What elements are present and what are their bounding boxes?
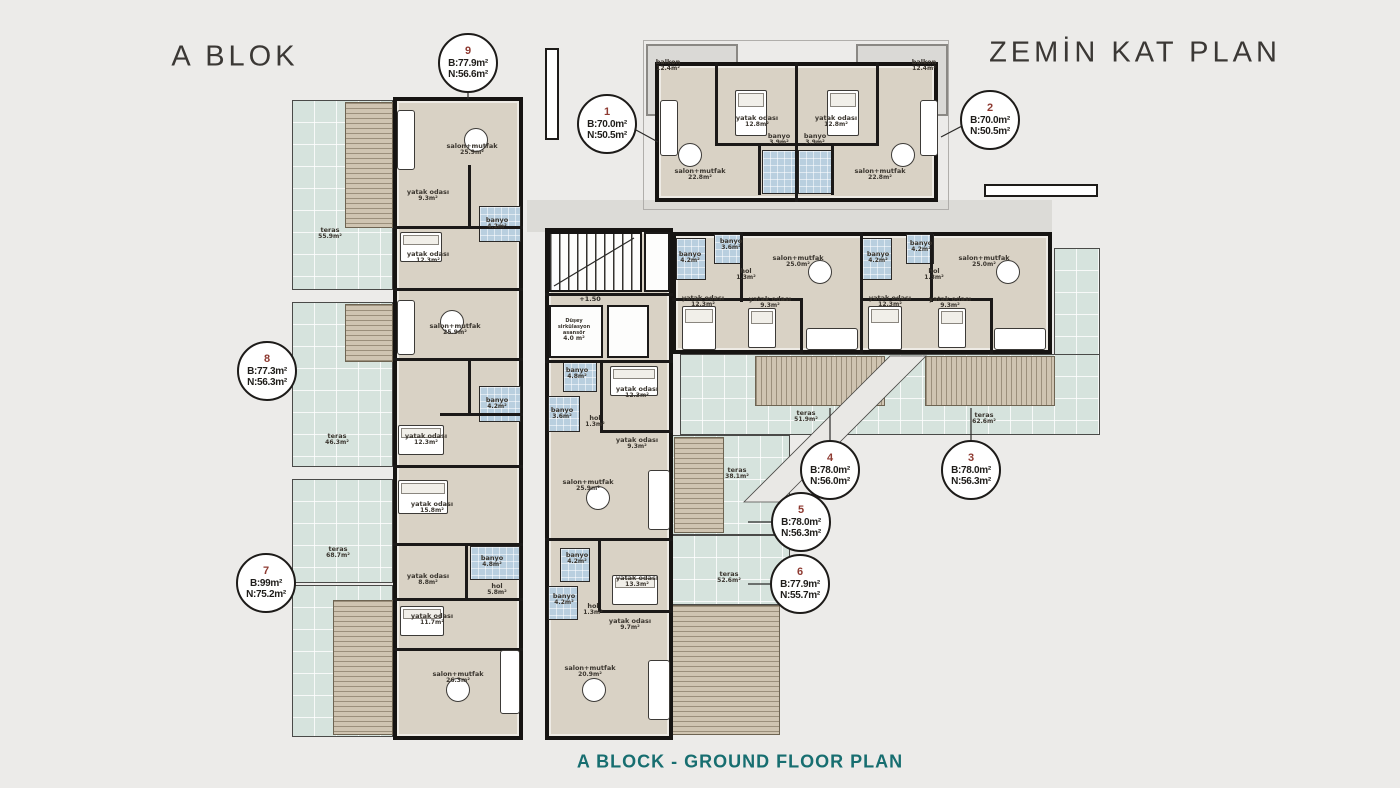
unit-badge-3: 3B:78.0m²N:56.3m² [941,440,1001,500]
unit-net-area: N:56.3m² [951,476,991,487]
room-area: 3.9m² [804,140,826,147]
room-label: banyo4.8m² [481,555,503,569]
room-label: hol1.3m² [585,415,605,429]
unit-net-area: N:56.3m² [781,528,821,539]
room-area: 9.3m² [616,444,658,451]
bed-furniture [938,308,966,348]
interior-wall [545,538,673,541]
room-label: banyo3.6m² [551,407,573,421]
unit-number: 4 [827,453,833,465]
room-area: 4.2m² [910,247,932,254]
room-area: 12.8m² [815,122,857,129]
unit-net-area: N:56.6m² [448,69,488,80]
sofa-furniture [660,100,678,156]
bed-furniture [748,308,776,348]
room-label: hol1.3m² [924,268,944,282]
room-label: yatak odası11.7m² [411,613,453,627]
terrace-label: teras55.9m² [318,227,342,241]
room-label: salon+mutfak22.8m² [854,168,905,182]
room-label: yatak odası12.3m² [869,295,911,309]
sofa-furniture [994,328,1046,350]
unit-number: 5 [798,505,804,517]
room-area: 12.8m² [736,122,778,129]
unit-badge-7: 7B:99m²N:75.2m² [236,553,296,613]
interior-wall [468,165,471,228]
room-area: 25.9m² [562,486,613,493]
room-area: 5.8m² [487,590,507,597]
interior-wall [715,62,718,146]
wood-deck [674,437,724,533]
room-area: 1.3m² [924,275,944,282]
unit-badge-6: 6B:77.9m²N:55.7m² [770,554,830,614]
room-label: salon+mutfak25.0m² [958,255,1009,269]
room-label: yatak odası12.8m² [815,115,857,129]
room-area: 25.0m² [772,262,823,269]
room-label: banyo4.2m² [867,251,889,265]
room-area: 3.9m² [768,140,790,147]
room-label: yatak odası8.8m² [407,573,449,587]
room-area: 15.8m² [411,508,453,515]
room-area: 4.2m² [867,258,889,265]
interior-wall [800,298,803,354]
room-area: 51.9m² [794,417,818,424]
terrace-label: teras38.1m² [725,467,749,481]
interior-wall [876,62,879,146]
floor-plan-canvas: A BLOK ZEMİN KAT PLAN salon+mutfak25.9m²… [0,0,1400,788]
unit-gross-area: B:77.9m² [448,58,488,69]
room-label: yatak odası9.7m² [609,618,651,632]
unit-net-area: N:56.0m² [810,476,850,487]
room-label: salon+mutfak25.0m² [772,255,823,269]
unit-number: 7 [263,566,269,578]
room-label: balkon12.4m² [656,59,681,73]
unit-net-area: N:55.7m² [780,590,820,601]
room-label: banyo3.9m² [804,133,826,147]
interior-wall [831,145,834,195]
interior-wall [393,358,523,361]
bathroom-floor [762,150,796,194]
interior-wall [393,543,523,546]
unit-number: 3 [968,453,974,465]
room-area: 9.7m² [609,625,651,632]
room-label: salon+mutfak25.9m² [446,143,497,157]
room-label: yatak odası15.8m² [411,501,453,515]
room-area: 12.4m² [912,66,937,73]
room-label: yatak odası12.8m² [736,115,778,129]
terrace-label: teras68.7m² [326,546,350,560]
plan-title: ZEMİN KAT PLAN [989,37,1281,70]
staircase [548,232,642,292]
room-area: 20.9m² [564,672,615,679]
pergola-wall [545,48,559,140]
room-area: 46.3m² [325,440,349,447]
room-label: banyo4.8m² [566,367,588,381]
interior-wall [393,465,523,468]
interior-wall [795,62,798,202]
interior-wall [468,358,471,413]
unit-number: 8 [264,354,270,366]
unit-badge-1: 1B:70.0m²N:50.5m² [577,94,637,154]
unit-badge-4: 4B:78.0m²N:56.0m² [800,440,860,500]
terrace-label: teras52.6m² [717,571,741,585]
unit-number: 6 [797,567,803,579]
room-label: salon+mutfak26.3m² [432,671,483,685]
bed-furniture [868,306,902,350]
room-area: 9.3m² [749,303,791,310]
room-label: yatak odası12.3m² [616,386,658,400]
wood-deck [925,356,1055,406]
unit-number: 2 [987,103,993,115]
unit-net-area: N:56.3m² [247,377,287,388]
room-label: Düşey sirkülasyon asansör4.0 m² [549,319,599,343]
room-area: 12.3m² [405,440,447,447]
interior-wall [990,298,993,354]
sofa-furniture [806,328,858,350]
unit-gross-area: B:78.0m² [781,517,821,528]
pergola-wall [984,184,1098,197]
unit-gross-area: B:70.0m² [970,115,1010,126]
interior-wall [440,413,523,416]
room-area: 25.9m² [446,150,497,157]
wood-deck [345,102,393,228]
room-area: 12.4m² [656,66,681,73]
room-area: 9.3m² [407,196,449,203]
room-area: 12.3m² [682,302,724,309]
room-label: yatak odası12.3m² [405,433,447,447]
interior-wall [598,540,601,612]
room-area: 4.8m² [481,562,503,569]
room-label: balkon12.4m² [912,59,937,73]
unit-number: 9 [465,46,471,58]
room-label: salon+mutfak25.9m² [429,323,480,337]
interior-wall [393,288,523,291]
room-label: hol1.3m² [583,603,603,617]
room-label: salon+mutfak25.9m² [562,479,613,493]
room-area: 1.3m² [736,275,756,282]
room-label: yatak odası13.3m² [616,575,658,589]
service-room [607,305,649,358]
wood-deck [333,600,393,735]
unit-net-area: N:75.2m² [246,589,286,600]
room-area: 25.0m² [958,262,1009,269]
room-area: 4.8m² [566,374,588,381]
room-area: 4.2m² [553,600,575,607]
room-area: 12.3m² [869,302,911,309]
room-area: 55.9m² [318,234,342,241]
room-label: yatak odası9.3m² [616,437,658,451]
block-title: A BLOK [171,41,298,74]
room-label: salon+mutfak20.9m² [564,665,615,679]
interior-wall [715,143,879,146]
room-name: Düşey sirkülasyon asansör [549,319,599,336]
room-area: 4.2m² [486,224,508,231]
room-label: banyo3.6m² [720,238,742,252]
interior-wall [393,598,523,601]
table-furniture [678,143,702,167]
plan-caption: A BLOCK - GROUND FLOOR PLAN [577,752,903,773]
wood-deck [755,356,885,406]
wood-deck [345,304,393,362]
room-area: 8.8m² [407,580,449,587]
room-area: 11.7m² [411,620,453,627]
sofa-furniture [397,300,415,355]
room-area: 4.2m² [679,258,701,265]
bed-furniture [682,306,716,350]
unit-badge-2: 2B:70.0m²N:50.5m² [960,90,1020,150]
room-area: 3.6m² [720,245,742,252]
room-label: banyo4.2m² [910,240,932,254]
interior-wall [600,430,673,433]
unit-net-area: N:50.5m² [970,126,1010,137]
room-label: yatak odası9.3m² [407,189,449,203]
interior-wall [600,610,673,613]
wood-deck [672,605,780,735]
terrace-label: teras46.3m² [325,433,349,447]
room-area: 12.3m² [407,258,449,265]
sofa-furniture [397,110,415,170]
terrace-label: teras62.6m² [972,412,996,426]
room-label: yatak odası12.3m² [407,251,449,265]
room-area: 62.6m² [972,419,996,426]
unit-badge-9: 9B:77.9m²N:56.6m² [438,33,498,93]
terrace-area [292,479,393,583]
room-area: 52.6m² [717,578,741,585]
room-area: 68.7m² [326,553,350,560]
room-label: salon+mutfak22.8m² [674,168,725,182]
room-area: 13.3m² [616,582,658,589]
sofa-furniture [648,470,670,530]
unit-gross-area: B:78.0m² [810,465,850,476]
room-label: yatak odası9.3m² [749,296,791,310]
room-area: 22.8m² [854,175,905,182]
bathroom-floor [798,150,832,194]
room-area: 3.6m² [551,414,573,421]
room-area: 1.3m² [583,610,603,617]
room-label: banyo4.2m² [679,251,701,265]
room-area: 38.1m² [725,474,749,481]
service-room [644,232,670,292]
unit-gross-area: B:70.0m² [587,119,627,130]
unit-badge-5: 5B:78.0m²N:56.3m² [771,492,831,552]
room-label: yatak odası9.3m² [929,296,971,310]
room-area: 4.2m² [486,404,508,411]
interior-wall [545,360,673,363]
unit-badge-8: 8B:77.3m²N:56.3m² [237,341,297,401]
sofa-furniture [648,660,670,720]
unit-gross-area: B:99m² [250,578,282,589]
room-label: hol1.3m² [736,268,756,282]
unit-net-area: N:50.5m² [587,130,627,141]
room-area: 25.9m² [429,330,480,337]
interior-wall [758,145,761,195]
room-label: hol5.8m² [487,583,507,597]
room-area: 4.0 m² [549,336,599,343]
table-furniture [891,143,915,167]
room-area: 4.2m² [566,559,588,566]
interior-wall [545,293,673,296]
terrace-label: teras51.9m² [794,410,818,424]
room-label: banyo4.2m² [486,397,508,411]
interior-wall [860,232,863,354]
interior-wall [465,543,468,600]
room-area: 9.3m² [929,303,971,310]
unit-number: 1 [604,107,610,119]
unit-gross-area: B:77.9m² [780,579,820,590]
table-furniture [582,678,606,702]
room-area: 12.3m² [616,393,658,400]
room-label: banyo4.2m² [486,217,508,231]
room-area: 26.3m² [432,678,483,685]
room-label: banyo4.2m² [553,593,575,607]
room-area: 22.8m² [674,175,725,182]
room-area: 1.3m² [585,422,605,429]
level-marker: +1.50 [579,295,600,303]
room-label: banyo3.9m² [768,133,790,147]
sofa-furniture [500,650,520,714]
room-label: yatak odası12.3m² [682,295,724,309]
room-label: banyo4.2m² [566,552,588,566]
sofa-furniture [920,100,938,156]
unit-gross-area: B:78.0m² [951,465,991,476]
unit-gross-area: B:77.3m² [247,366,287,377]
